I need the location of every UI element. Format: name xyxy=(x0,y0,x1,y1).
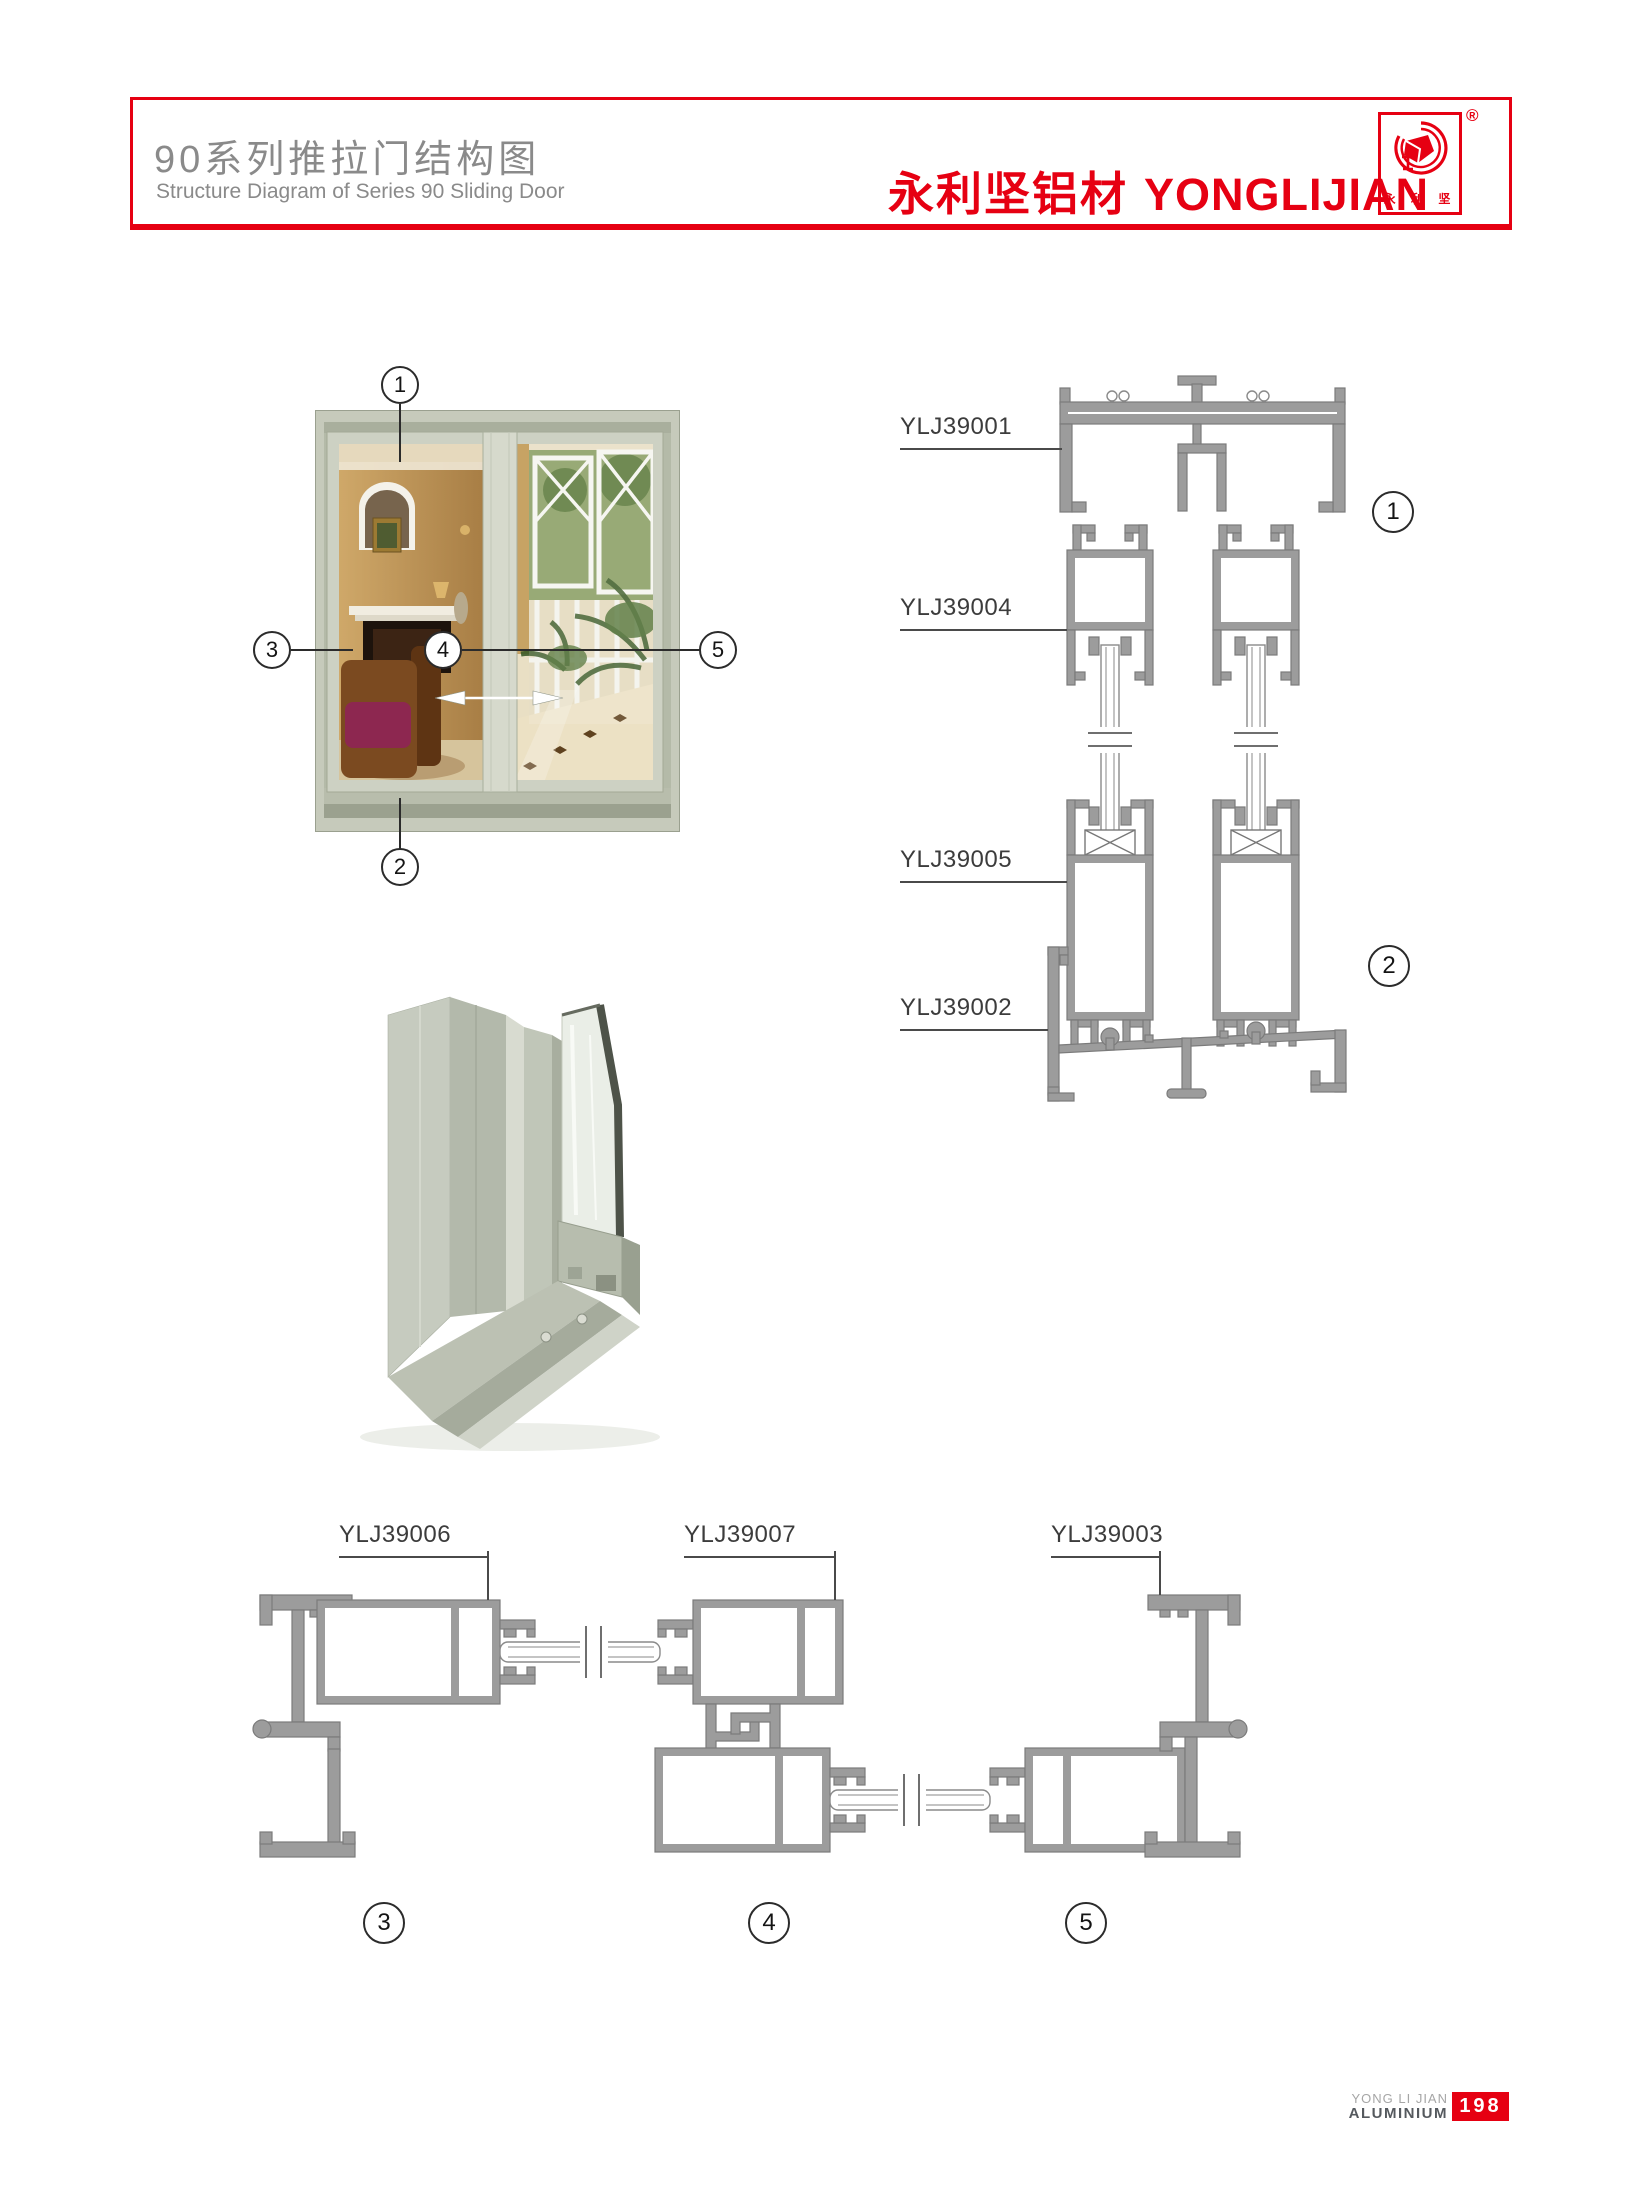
callout-line-3 xyxy=(291,649,353,651)
page-title: 90系列推拉门结构图 xyxy=(154,128,540,183)
callout-line-1 xyxy=(399,404,401,462)
leader-ylj39006 xyxy=(487,1551,489,1600)
section-callout-4: 4 xyxy=(748,1902,790,1944)
profile-label-ylj39007: YLJ39007 xyxy=(684,1521,836,1558)
conservatory-scene xyxy=(503,444,657,780)
callout-1: 1 xyxy=(381,366,419,404)
footer-company: YONG LI JIAN ALUMINIUM xyxy=(1322,2092,1448,2123)
yonglijian-logo: 永 利 坚 xyxy=(1378,112,1462,215)
callout-3: 3 xyxy=(253,631,291,669)
page-subtitle: Structure Diagram of Series 90 Sliding D… xyxy=(156,180,565,204)
section-callout-1: 1 xyxy=(1372,491,1414,533)
section-callout-2: 2 xyxy=(1368,945,1410,987)
corner-sample-render xyxy=(300,985,690,1465)
registered-mark-icon: ® xyxy=(1466,106,1479,126)
profile-label-ylj39004: YLJ39004 xyxy=(900,594,1067,631)
callout-2: 2 xyxy=(381,848,419,886)
section-callout-5: 5 xyxy=(1065,1902,1107,1944)
page-number-badge: 198 xyxy=(1452,2092,1509,2121)
leader-ylj39003 xyxy=(1159,1551,1161,1595)
horizontal-section-drawing xyxy=(250,1580,1360,1890)
brand-cn: 永利坚铝材 xyxy=(888,158,1128,224)
profile-stile-ylj39007 xyxy=(658,1600,843,1704)
callout-4: 4 xyxy=(424,631,462,669)
profile-label-ylj39001: YLJ39001 xyxy=(900,413,1062,450)
callout-5: 5 xyxy=(699,631,737,669)
profile-head-track xyxy=(1060,376,1345,512)
profile-interlock xyxy=(706,1704,780,1749)
profile-label-ylj39003: YLJ39003 xyxy=(1051,1521,1161,1558)
footer-company-line1: YONG LI JIAN xyxy=(1322,2092,1448,2106)
profile-panel-section xyxy=(1067,525,1153,1046)
section-callout-3: 3 xyxy=(363,1902,405,1944)
footer-company-line2: ALUMINIUM xyxy=(1322,2106,1448,2123)
brand-wordmark: 永利坚铝材 YONGLIJIAN xyxy=(888,158,1429,224)
leader-ylj39007 xyxy=(834,1551,836,1600)
profile-label-ylj39006: YLJ39006 xyxy=(339,1521,489,1558)
profile-label-ylj39002: YLJ39002 xyxy=(900,994,1048,1031)
callout-line-2 xyxy=(399,798,401,850)
sliding-door-photo xyxy=(315,410,680,832)
callout-line-4 xyxy=(462,649,700,651)
profile-label-ylj39005: YLJ39005 xyxy=(900,846,1067,883)
logo-caption: 永 利 坚 xyxy=(1384,190,1457,207)
catalog-page: { "header": { "title_cn": "90系列推拉门结构图", … xyxy=(0,0,1635,2203)
logo-swirl-icon xyxy=(1388,119,1452,181)
